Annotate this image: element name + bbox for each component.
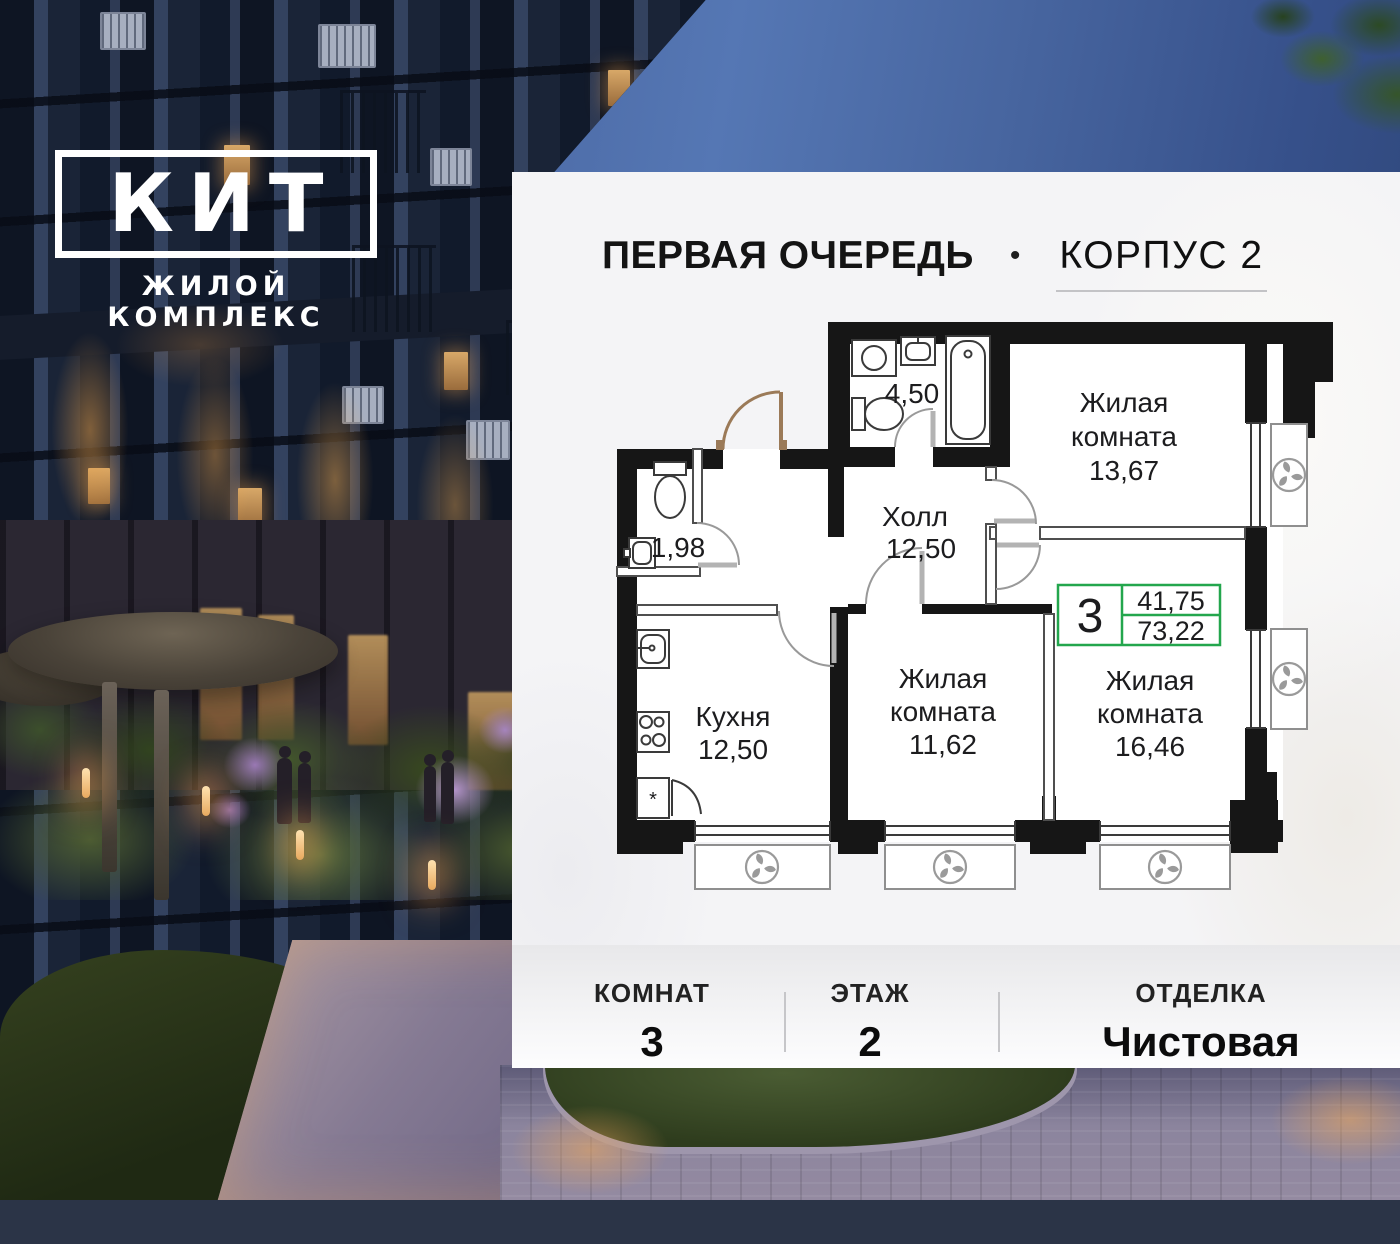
bollard-light xyxy=(296,830,304,860)
person-silhouette xyxy=(424,766,436,822)
living1-area: 13,67 xyxy=(1089,455,1159,486)
person-silhouette xyxy=(441,762,454,824)
canopy-structure xyxy=(8,612,338,690)
fan-icon xyxy=(746,851,778,883)
canopy-post xyxy=(102,682,117,872)
finish-value: Чистовая xyxy=(1031,1018,1371,1066)
fridge-star: * xyxy=(649,789,657,811)
bathroom-area: 4,50 xyxy=(885,378,940,409)
floor-plan: * 4,50 Жилая комната 13,67 Холл 12,50 1,… xyxy=(600,310,1360,1010)
fan-icon xyxy=(1149,851,1181,883)
light-reflection xyxy=(1270,1075,1400,1165)
wc-area: 1,98 xyxy=(651,532,706,563)
floor-value: 2 xyxy=(780,1018,960,1066)
light-reflection xyxy=(510,1105,670,1195)
living1-name-2: комната xyxy=(1071,421,1177,452)
building-link[interactable]: КОРПУС 2 xyxy=(1056,234,1266,292)
rooms-value: 3 xyxy=(522,1018,782,1066)
card-header: ПЕРВАЯ ОЧЕРЕДЬ • КОРПУС 2 xyxy=(602,234,1267,292)
living3-name-2: комната xyxy=(1097,698,1203,729)
fan-icon xyxy=(934,851,966,883)
bollard-light xyxy=(82,768,90,798)
person-silhouette xyxy=(277,758,292,824)
badge-rooms-count: 3 xyxy=(1077,590,1104,643)
bollard-light xyxy=(428,860,436,890)
area-badge: 3 41,75 73,22 xyxy=(1058,585,1220,646)
living3-area: 16,46 xyxy=(1115,731,1185,762)
hall-name: Холл xyxy=(882,501,948,532)
logo-title: КИТ xyxy=(95,164,338,244)
phase-title: ПЕРВАЯ ОЧЕРЕДЬ xyxy=(602,234,974,278)
living2-name-1: Жилая xyxy=(899,663,988,694)
fan-icon xyxy=(1273,663,1305,695)
living1-name-1: Жилая xyxy=(1080,387,1169,418)
fan-icon xyxy=(1273,459,1305,491)
kitchen-area: 12,50 xyxy=(698,734,768,765)
living2-area: 11,62 xyxy=(909,729,977,760)
badge-total-area: 73,22 xyxy=(1137,616,1205,646)
living2-name-2: комната xyxy=(890,696,996,727)
canopy-post xyxy=(154,690,169,900)
living3-name-1: Жилая xyxy=(1106,665,1195,696)
person-silhouette xyxy=(298,763,311,823)
logo-subtitle: ЖИЛОЙ КОМПЛЕКС xyxy=(40,271,392,333)
hall-area: 12,50 xyxy=(886,533,956,564)
separator-dot: • xyxy=(1010,239,1021,273)
badge-living-area: 41,75 xyxy=(1137,586,1205,616)
bollard-light xyxy=(202,786,210,816)
logo-frame: КИТ xyxy=(55,150,377,258)
paved-walkway xyxy=(500,1065,1400,1200)
kitchen-name: Кухня xyxy=(696,701,771,732)
entrance-door xyxy=(716,392,787,450)
